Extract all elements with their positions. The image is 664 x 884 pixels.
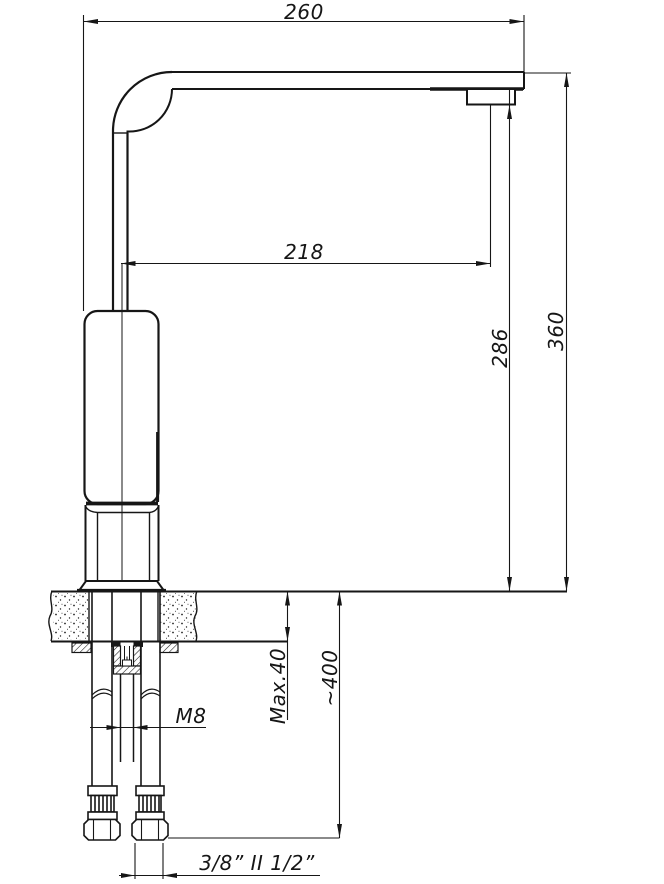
arrowhead bbox=[84, 19, 99, 24]
fixing-washer-left bbox=[72, 643, 91, 653]
arrowhead bbox=[564, 577, 569, 591]
hose-right-break-mark bbox=[141, 689, 160, 699]
arrowhead bbox=[337, 592, 342, 606]
label-stud-thread: M8 bbox=[176, 704, 207, 728]
arrowhead bbox=[285, 627, 290, 641]
label-connector-sizes: 3/8” II 1/2” bbox=[199, 851, 315, 875]
label-deck-thickness: Max.40 bbox=[266, 648, 290, 724]
label-overall-height: 360 bbox=[544, 311, 568, 351]
connector-collar-bottom bbox=[136, 812, 164, 820]
connector-hex-nut bbox=[132, 820, 168, 841]
arrowhead bbox=[121, 873, 135, 878]
arrowhead bbox=[285, 592, 290, 606]
arrowhead bbox=[510, 19, 525, 24]
drawing-canvas: 260 218 286 360 Max.40 ~400 M8 3/8” II 1… bbox=[0, 0, 664, 884]
under-counter-fixing bbox=[72, 642, 178, 763]
counter-stipple-right bbox=[160, 593, 196, 640]
bend-inner-arc bbox=[128, 89, 173, 133]
connector-collar-top bbox=[88, 786, 117, 796]
label-hose-length: ~400 bbox=[318, 650, 342, 707]
faucet-technical-drawing: 260 218 286 360 Max.40 ~400 M8 3/8” II 1… bbox=[0, 0, 664, 884]
bracket-base bbox=[114, 666, 141, 674]
stud-foot bbox=[123, 660, 132, 666]
arrowhead bbox=[163, 873, 177, 878]
hose-connector-left bbox=[84, 786, 120, 840]
fixing-washer-right bbox=[160, 643, 178, 653]
supply-hoses bbox=[84, 592, 168, 840]
bracket-leg-left bbox=[114, 646, 121, 666]
counter-break-edge-left bbox=[49, 591, 52, 641]
arrowhead bbox=[107, 725, 121, 730]
dimension-260 bbox=[84, 15, 525, 311]
arrowhead bbox=[476, 261, 491, 266]
aerator bbox=[467, 89, 515, 105]
arrowhead bbox=[507, 105, 512, 119]
faucet-outline bbox=[77, 72, 524, 591]
connector-hex-nut bbox=[84, 820, 120, 841]
hose-connector-right bbox=[132, 786, 168, 840]
connector-collar-top bbox=[136, 786, 164, 796]
label-spout-reach-to-aerator: 218 bbox=[284, 240, 324, 264]
label-aerator-height: 286 bbox=[488, 328, 512, 368]
base-flange bbox=[80, 581, 164, 590]
countertop bbox=[49, 591, 567, 642]
label-spout-reach-overall: 260 bbox=[284, 0, 324, 24]
counter-stipple-left bbox=[53, 593, 88, 640]
hose-left-break-mark bbox=[92, 689, 112, 699]
bend-outer-arc bbox=[113, 72, 172, 133]
bracket-leg-right bbox=[134, 646, 141, 666]
arrowhead bbox=[507, 577, 512, 591]
arrowhead bbox=[337, 824, 342, 838]
connector-collar-bottom bbox=[88, 812, 117, 820]
arrowhead bbox=[564, 73, 569, 87]
